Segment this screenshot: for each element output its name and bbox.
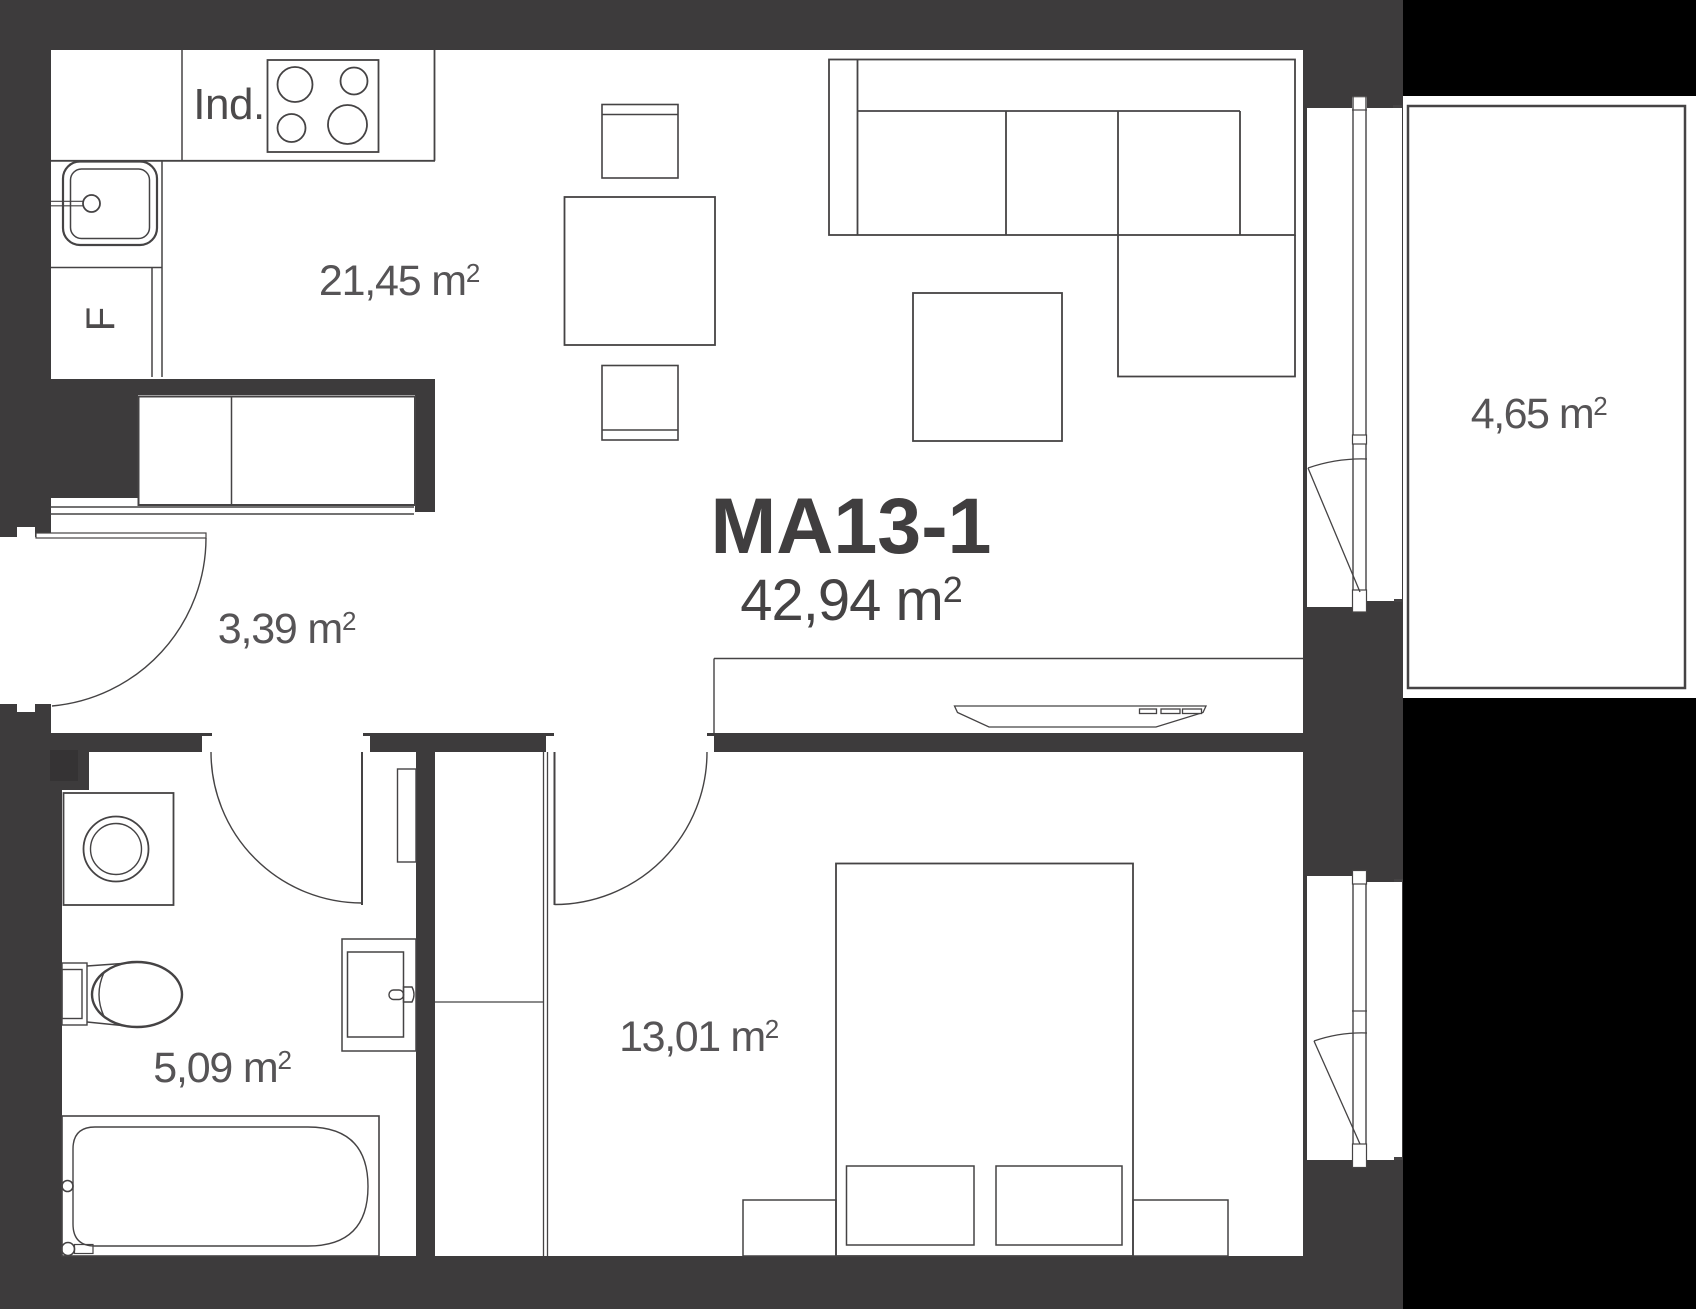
svg-text:13,01 m2: 13,01 m2 xyxy=(619,1013,779,1061)
svg-text:Ind.: Ind. xyxy=(193,80,264,129)
svg-text:21,45 m2: 21,45 m2 xyxy=(319,257,480,305)
svg-text:3,39 m2: 3,39 m2 xyxy=(218,605,356,653)
svg-text:MA13-1: MA13-1 xyxy=(711,481,992,570)
svg-text:5,09 m2: 5,09 m2 xyxy=(153,1044,291,1092)
svg-text:42,94 m2: 42,94 m2 xyxy=(740,568,962,633)
svg-text:F: F xyxy=(79,307,123,331)
svg-text:4,65 m2: 4,65 m2 xyxy=(1471,390,1607,438)
